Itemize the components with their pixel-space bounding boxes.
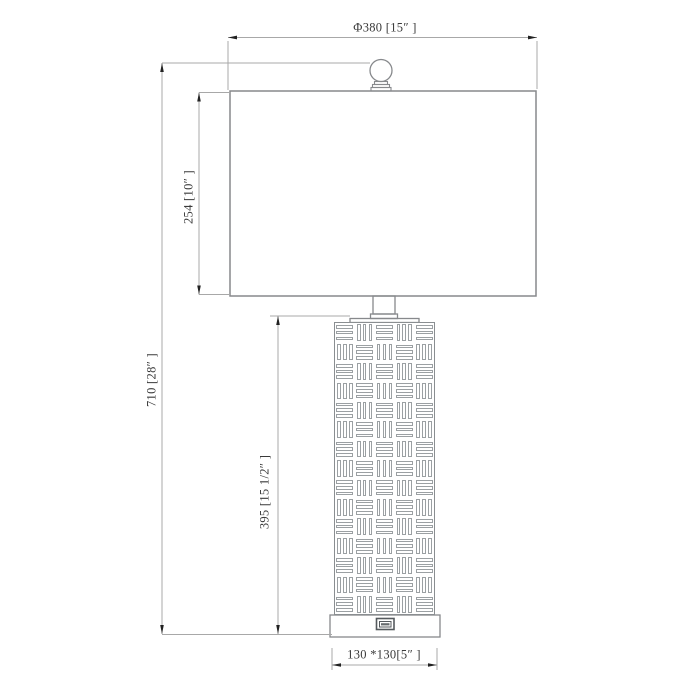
weave-slat [383, 344, 387, 361]
weave-tile [335, 439, 355, 458]
weave-tile [414, 401, 434, 420]
weave-slat [336, 453, 353, 457]
weave-slat [356, 356, 373, 360]
weave-slat [416, 344, 420, 361]
neck-flange [371, 314, 398, 319]
weave-slat [363, 557, 367, 574]
weave-slat [396, 422, 413, 426]
weave-slat [343, 499, 347, 516]
weave-slat [402, 402, 406, 419]
weave-slat [376, 364, 393, 368]
weave-slat [376, 414, 393, 418]
weave-slat [376, 447, 393, 451]
weave-slat [349, 499, 353, 516]
arrow-down-icon [160, 625, 164, 634]
weave-slat [397, 557, 401, 574]
weave-slat [363, 441, 367, 458]
weave-slat [416, 325, 433, 329]
weave-slat [396, 589, 413, 593]
weave-tile [414, 536, 434, 555]
weave-slat [377, 538, 381, 555]
weave-slat [377, 460, 381, 477]
weave-slat [383, 383, 387, 400]
weave-slat [383, 538, 387, 555]
dim-label-total-height: 710 [28″ ] [145, 353, 160, 407]
weave-slat [408, 557, 412, 574]
weave-slat [356, 472, 373, 476]
weave-slat [383, 460, 387, 477]
weave-slat [422, 538, 426, 555]
weave-slat [416, 492, 433, 496]
weave-tile [375, 478, 395, 497]
weave-slat [396, 550, 413, 554]
weave-tile [355, 439, 375, 458]
weave-tile [414, 575, 434, 594]
weave-tile [335, 536, 355, 555]
weave-slat [389, 499, 393, 516]
weave-slat [349, 344, 353, 361]
weave-slat [376, 597, 393, 601]
weave-slat [408, 518, 412, 535]
weave-slat [343, 577, 347, 594]
weave-tile [394, 459, 414, 478]
arrow-down-icon [276, 625, 280, 634]
weave-slat [376, 486, 393, 490]
weave-slat [336, 364, 353, 368]
weave-slat [397, 324, 401, 341]
weave-tile [414, 420, 434, 439]
weave-tile [375, 381, 395, 400]
weave-slat [376, 375, 393, 379]
weave-slat [336, 602, 353, 606]
weave-tile [375, 362, 395, 381]
weave-slat [396, 500, 413, 504]
weave-slat [363, 596, 367, 613]
weave-slat [363, 324, 367, 341]
weave-slat [369, 518, 373, 535]
weave-slat [396, 461, 413, 465]
weave-tile [414, 478, 434, 497]
weave-slat [336, 525, 353, 529]
weave-slat [336, 442, 353, 446]
weave-tile [375, 323, 395, 342]
weave-tile [355, 517, 375, 536]
weave-slat [349, 383, 353, 400]
weave-slat [357, 402, 361, 419]
lamp-shade [230, 91, 536, 296]
weave-tile [355, 459, 375, 478]
weave-tile [394, 362, 414, 381]
weave-slat [336, 325, 353, 329]
weave-slat [356, 511, 373, 515]
weave-slat [356, 428, 373, 432]
arrow-left-icon [228, 36, 237, 40]
weave-slat [402, 324, 406, 341]
weave-slat [396, 383, 413, 387]
dim-label-shade-height: 254 [10″ ] [182, 170, 197, 224]
weave-slat [357, 324, 361, 341]
weave-slat [356, 467, 373, 471]
weave-slat [337, 421, 341, 438]
weave-slat [357, 557, 361, 574]
weave-tile [335, 420, 355, 439]
weave-slat [397, 363, 401, 380]
weave-slat [356, 461, 373, 465]
weave-slat [396, 511, 413, 515]
finial-rings [371, 82, 391, 92]
weave-tile [375, 556, 395, 575]
weave-tile [394, 401, 414, 420]
weave-slat [349, 538, 353, 555]
weave-slat [356, 589, 373, 593]
weave-slat [396, 472, 413, 476]
weave-tile [335, 595, 355, 614]
weave-slat [336, 403, 353, 407]
weave-slat [389, 344, 393, 361]
weave-tile [335, 478, 355, 497]
weave-tile [335, 459, 355, 478]
weave-slat [416, 364, 433, 368]
weave-slat [356, 434, 373, 438]
weave-slat [422, 499, 426, 516]
weave-slat [416, 519, 433, 523]
arrow-left-icon [332, 663, 341, 667]
weave-slat [397, 596, 401, 613]
dim-shade-height [197, 93, 231, 295]
weave-slat [356, 395, 373, 399]
weave-slat [369, 363, 373, 380]
weave-tile [335, 342, 355, 361]
weave-slat [336, 597, 353, 601]
weave-slat [369, 557, 373, 574]
weave-slat [357, 363, 361, 380]
weave-tile [375, 498, 395, 517]
weave-tile [335, 323, 355, 342]
weave-slat [377, 421, 381, 438]
weave-slat [422, 344, 426, 361]
finial-ball [370, 60, 392, 82]
weave-tile [414, 342, 434, 361]
weave-slat [336, 331, 353, 335]
weave-slat [343, 460, 347, 477]
weave-tile [394, 420, 414, 439]
weave-slat [356, 539, 373, 543]
weave-tile [414, 381, 434, 400]
weave-slat [369, 480, 373, 497]
weave-tile [375, 342, 395, 361]
weave-slat [416, 480, 433, 484]
weave-slat [416, 486, 433, 490]
weave-slat [416, 453, 433, 457]
weave-slat [363, 480, 367, 497]
weave-tile [355, 536, 375, 555]
weave-slat [343, 344, 347, 361]
weave-slat [337, 460, 341, 477]
weave-slat [336, 569, 353, 573]
weave-tile [375, 575, 395, 594]
weave-slat [337, 499, 341, 516]
weave-slat [397, 480, 401, 497]
weave-slat [377, 344, 381, 361]
weave-slat [336, 531, 353, 535]
dim-label-body-height: 395 [15 1/2″ ] [258, 455, 273, 529]
weave-slat [416, 460, 420, 477]
weave-slat [363, 402, 367, 419]
weave-slat [369, 324, 373, 341]
weave-tile [394, 342, 414, 361]
weave-slat [336, 370, 353, 374]
weave-slat [428, 383, 432, 400]
weave-slat [416, 602, 433, 606]
weave-tile [375, 536, 395, 555]
lamp-body-weave [334, 322, 435, 615]
weave-tile [355, 381, 375, 400]
weave-tile [394, 478, 414, 497]
weave-slat [356, 577, 373, 581]
weave-slat [356, 550, 373, 554]
weave-slat [336, 408, 353, 412]
arrow-up-icon [276, 316, 280, 325]
weave-slat [357, 441, 361, 458]
weave-slat [377, 383, 381, 400]
weave-slat [376, 525, 393, 529]
weave-tile [335, 362, 355, 381]
weave-tile [355, 595, 375, 614]
weave-tile [414, 595, 434, 614]
weave-tile [414, 362, 434, 381]
weave-slat [349, 577, 353, 594]
arrow-right-icon [528, 36, 537, 40]
weave-slat [336, 564, 353, 568]
weave-slat [416, 337, 433, 341]
weave-slat [383, 421, 387, 438]
weave-tile [414, 517, 434, 536]
weave-tile [394, 575, 414, 594]
weave-slat [376, 558, 393, 562]
weave-slat [416, 331, 433, 335]
weave-tile [414, 459, 434, 478]
weave-slat [396, 539, 413, 543]
weave-tile [335, 575, 355, 594]
weave-tile [394, 381, 414, 400]
weave-slat [337, 538, 341, 555]
weave-slat [396, 583, 413, 587]
weave-tile [414, 498, 434, 517]
weave-slat [357, 480, 361, 497]
weave-slat [396, 356, 413, 360]
weave-slat [376, 519, 393, 523]
weave-slat [416, 375, 433, 379]
weave-tile [355, 323, 375, 342]
weave-slat [416, 414, 433, 418]
arrow-up-icon [197, 93, 201, 102]
usb-port-icon [377, 619, 395, 630]
weave-slat [402, 596, 406, 613]
weave-slat [408, 363, 412, 380]
weave-slat [349, 421, 353, 438]
weave-tile [394, 556, 414, 575]
weave-slat [376, 531, 393, 535]
weave-tile [394, 595, 414, 614]
weave-slat [416, 499, 420, 516]
weave-slat [416, 531, 433, 535]
arrow-up-icon [160, 63, 164, 72]
weave-slat [376, 569, 393, 573]
weave-slat [376, 442, 393, 446]
weave-tile [355, 478, 375, 497]
weave-tile [375, 595, 395, 614]
weave-slat [428, 577, 432, 594]
weave-tile [335, 517, 355, 536]
weave-slat [336, 492, 353, 496]
weave-slat [376, 331, 393, 335]
weave-slat [428, 421, 432, 438]
weave-tile [394, 536, 414, 555]
weave-slat [356, 345, 373, 349]
weave-slat [402, 363, 406, 380]
weave-slat [396, 544, 413, 548]
weave-slat [376, 370, 393, 374]
weave-tile [375, 459, 395, 478]
weave-slat [416, 558, 433, 562]
weave-slat [416, 370, 433, 374]
weave-slat [416, 403, 433, 407]
weave-tile [375, 401, 395, 420]
weave-slat [376, 453, 393, 457]
weave-slat [376, 608, 393, 612]
weave-slat [408, 324, 412, 341]
weave-tile [375, 420, 395, 439]
weave-tile [355, 362, 375, 381]
weave-slat [337, 344, 341, 361]
weave-slat [397, 402, 401, 419]
weave-slat [402, 557, 406, 574]
weave-slat [363, 518, 367, 535]
weave-slat [416, 577, 420, 594]
weave-slat [343, 421, 347, 438]
arrow-down-icon [197, 286, 201, 295]
weave-slat [356, 583, 373, 587]
weave-slat [397, 441, 401, 458]
weave-tile [355, 556, 375, 575]
weave-slat [422, 577, 426, 594]
weave-slat [376, 325, 393, 329]
weave-tile [414, 323, 434, 342]
weave-slat [336, 375, 353, 379]
weave-slat [369, 402, 373, 419]
weave-slat [389, 460, 393, 477]
weave-slat [396, 395, 413, 399]
weave-slat [428, 499, 432, 516]
weave-slat [416, 538, 420, 555]
weave-tile [335, 498, 355, 517]
weave-slat [408, 402, 412, 419]
weave-slat [357, 518, 361, 535]
weave-slat [376, 403, 393, 407]
weave-slat [376, 408, 393, 412]
weave-slat [428, 460, 432, 477]
weave-slat [356, 350, 373, 354]
weave-slat [356, 505, 373, 509]
weave-slat [336, 608, 353, 612]
weave-slat [422, 383, 426, 400]
weave-slat [336, 447, 353, 451]
dim-label-base-size: 130 *130[5″ ] [347, 648, 421, 663]
weave-slat [389, 383, 393, 400]
weave-slat [336, 337, 353, 341]
weave-slat [402, 480, 406, 497]
weave-slat [408, 441, 412, 458]
weave-slat [416, 564, 433, 568]
weave-slat [416, 421, 420, 438]
weave-slat [397, 518, 401, 535]
weave-tile [375, 517, 395, 536]
weave-slat [356, 422, 373, 426]
weave-slat [396, 428, 413, 432]
weave-tile [414, 439, 434, 458]
weave-slat [356, 500, 373, 504]
weave-slat [389, 577, 393, 594]
weave-slat [377, 499, 381, 516]
weave-slat [336, 558, 353, 562]
weave-slat [396, 434, 413, 438]
weave-tile [355, 575, 375, 594]
weave-slat [428, 538, 432, 555]
weave-slat [356, 389, 373, 393]
weave-tile [335, 401, 355, 420]
weave-slat [376, 492, 393, 496]
weave-slat [369, 441, 373, 458]
weave-slat [422, 421, 426, 438]
weave-slat [416, 447, 433, 451]
weave-slat [396, 389, 413, 393]
weave-slat [396, 577, 413, 581]
arrow-right-icon [428, 663, 437, 667]
neck-tube [373, 296, 395, 314]
weave-slat [376, 480, 393, 484]
weave-slat [336, 486, 353, 490]
weave-slat [416, 442, 433, 446]
weave-tile [335, 381, 355, 400]
weave-tile [355, 498, 375, 517]
weave-tile [394, 439, 414, 458]
weave-slat [336, 480, 353, 484]
weave-slat [416, 525, 433, 529]
weave-tile [375, 439, 395, 458]
weave-slat [376, 564, 393, 568]
dim-label-shade-width: Φ380 [15″ ] [353, 21, 416, 36]
weave-tile [335, 556, 355, 575]
weave-slat [343, 538, 347, 555]
weave-slat [377, 577, 381, 594]
weave-tile [355, 342, 375, 361]
weave-slat [383, 499, 387, 516]
weave-slat [363, 363, 367, 380]
weave-slat [349, 460, 353, 477]
lamp-dimension-drawing: Φ380 [15″ ] 710 [28″ ] 254 [10″ ] 395 [1… [0, 0, 700, 700]
weave-slat [396, 467, 413, 471]
weave-slat [343, 383, 347, 400]
weave-slat [356, 383, 373, 387]
weave-slat [416, 569, 433, 573]
weave-slat [416, 608, 433, 612]
weave-slat [336, 414, 353, 418]
weave-slat [416, 597, 433, 601]
weave-slat [402, 441, 406, 458]
weave-slat [408, 480, 412, 497]
weave-slat [337, 383, 341, 400]
weave-slat [369, 596, 373, 613]
